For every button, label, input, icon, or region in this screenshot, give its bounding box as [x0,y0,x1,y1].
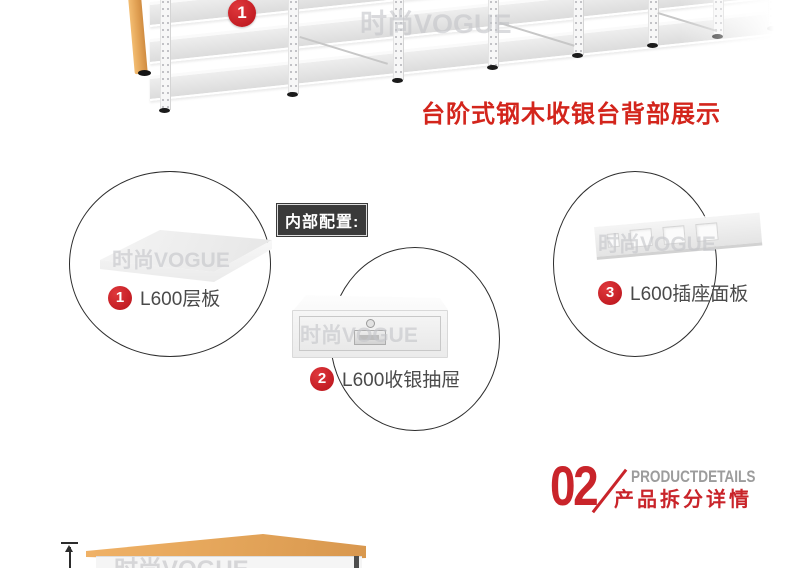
cash-drawer-image: 时尚VOGUE [290,295,450,365]
callout-badge-3: 3 [598,281,622,305]
socket-cutout [607,233,620,248]
section-number: 02 [550,460,596,512]
drawer-front-face [299,316,441,351]
shelf-foot [159,108,170,113]
callout-badge-2: 2 [310,367,334,391]
callout-item-1: 1 L600层板 [108,284,220,311]
shelf-post [288,0,299,94]
callout-badge-1: 1 [108,286,132,310]
shelf-post [160,0,171,110]
socket-cutout [629,228,652,248]
shelf-foot [647,43,658,48]
config-label: 内部配置: [276,203,368,237]
counter-body: 时尚VOGUE [96,556,362,568]
product-detail-page: 时尚VOGUE 1 台阶式钢木收银台背部展示 内部配置: 时尚VOGUE 时尚V… [0,0,790,568]
callout-label-1: L600层板 [140,284,220,311]
section-title-cn: 产品拆分详情 [614,483,752,512]
counter-shadow-mark [354,556,359,568]
shelf-post [648,0,659,45]
socket-panel-bar [594,212,762,260]
dimension-cap [61,542,78,544]
wood-leg-foot [138,70,151,76]
callout-label-2: L600收银抽屉 [342,365,460,392]
shelf-post [488,0,499,67]
watermark-text: 时尚VOGUE [114,556,249,568]
keyhole-icon [366,319,375,328]
shelf-post [573,0,584,55]
shelf-foot [572,53,583,58]
shelf-foot [287,92,298,97]
shelf-foot [487,65,498,70]
callout-badge-1-on-image: 1 [228,0,256,27]
drawer-body [292,310,448,358]
back-view-caption: 台阶式钢木收银台背部展示 [421,94,721,129]
socket-cutout [662,225,685,245]
dimension-line [69,547,71,568]
drawer-handle-slot [359,335,379,340]
shelf-board-image: 时尚VOGUE [98,222,276,288]
callout-item-2: 2 L600收银抽屉 [310,365,460,392]
socket-cutout [695,222,718,242]
drawer-handle [354,330,386,345]
callout-item-3: 3 L600插座面板 [598,279,748,306]
socket-panel-image: 时尚VOGUE [594,218,766,272]
callout-label-3: L600插座面板 [630,279,748,306]
shelf-post [393,0,404,80]
shelf-foot [392,78,403,83]
wood-leg [128,0,148,74]
